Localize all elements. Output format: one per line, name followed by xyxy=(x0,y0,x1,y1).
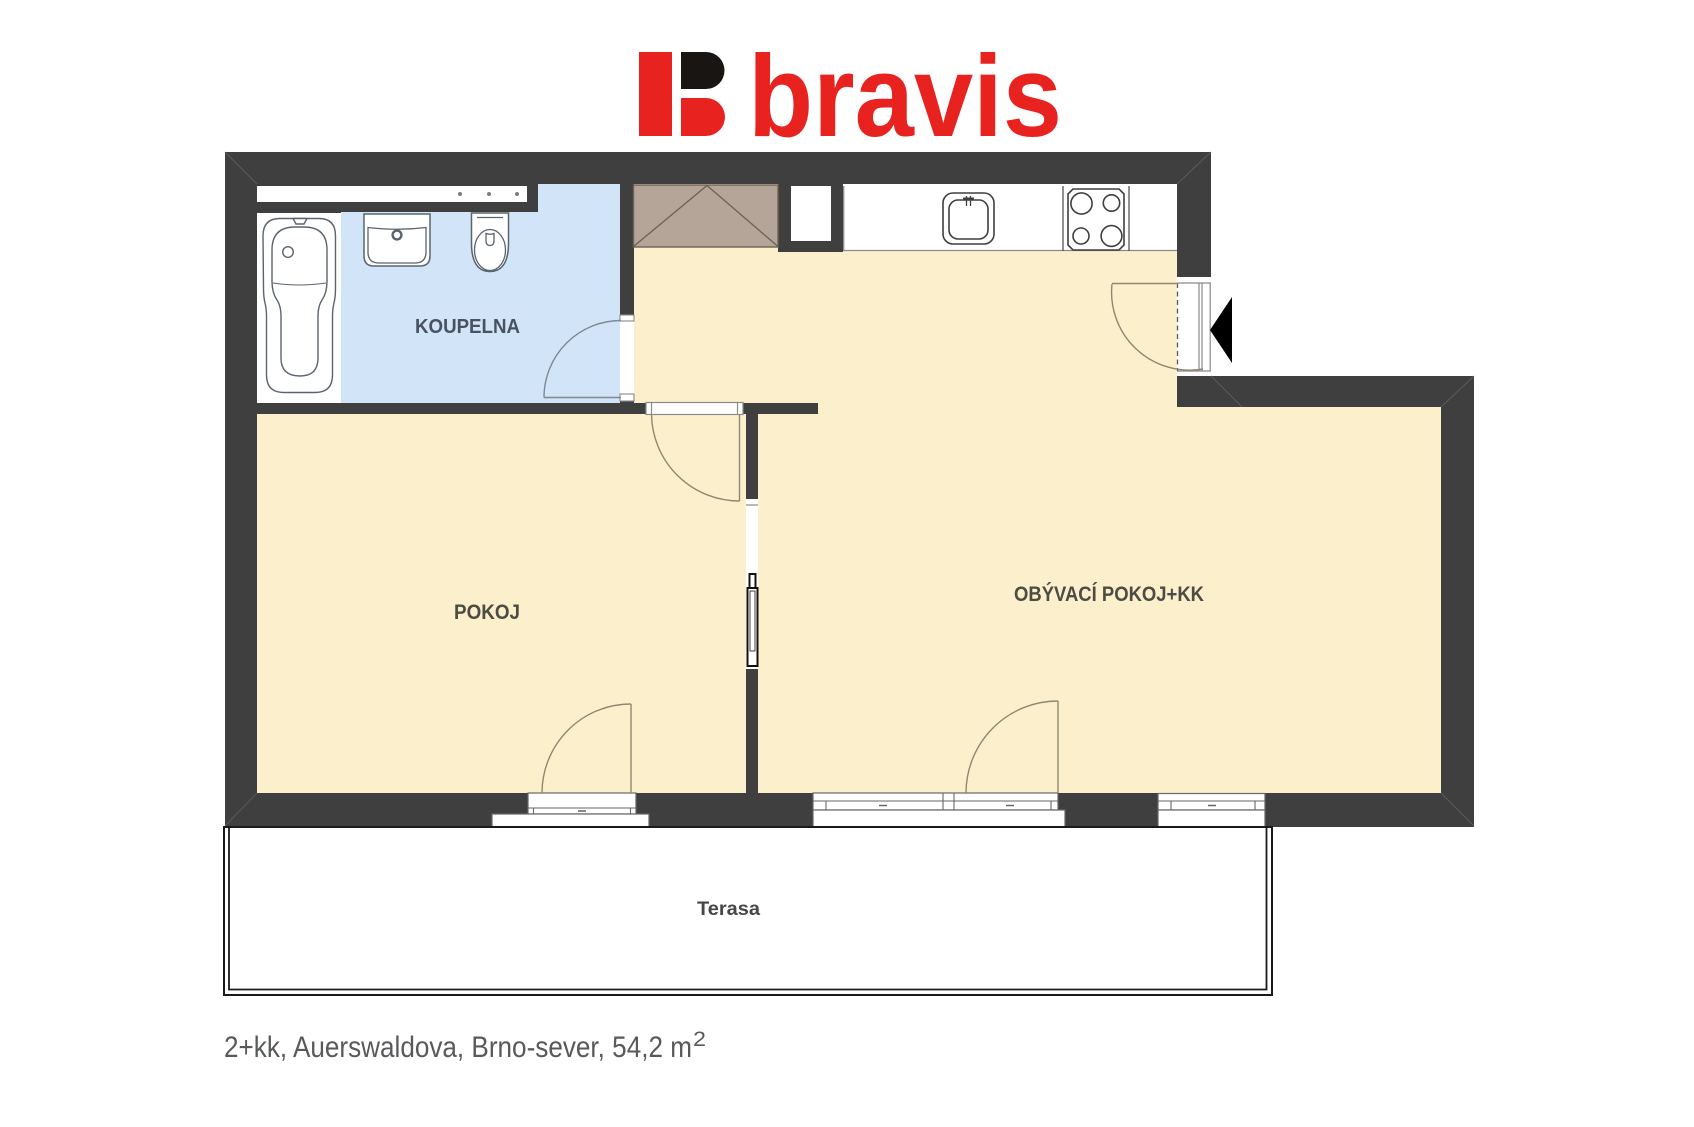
svg-text:OBÝVACÍ POKOJ+KK: OBÝVACÍ POKOJ+KK xyxy=(1014,582,1204,606)
svg-text:POKOJ: POKOJ xyxy=(454,601,520,624)
svg-text:bravis: bravis xyxy=(748,31,1062,161)
svg-text:KOUPELNA: KOUPELNA xyxy=(415,316,520,338)
svg-text:Terasa: Terasa xyxy=(697,899,760,920)
svg-text:2+kk, Auerswaldova, Brno-sever: 2+kk, Auerswaldova, Brno-sever, 54,2 m2 xyxy=(224,1028,706,1064)
